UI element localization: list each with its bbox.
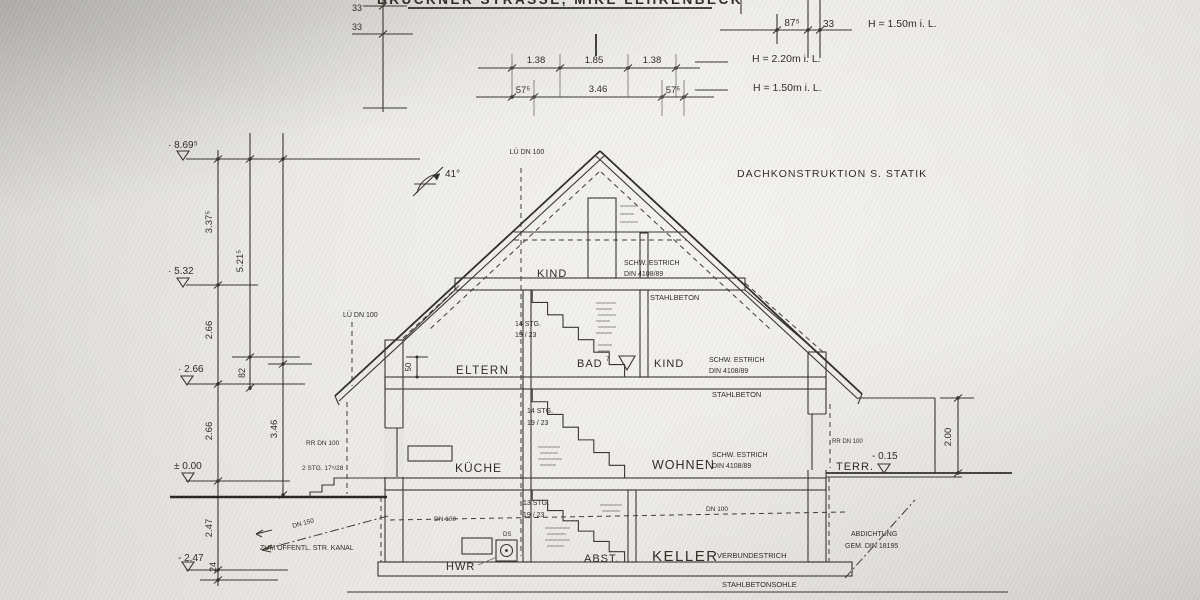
level-266: · 2.66	[178, 364, 204, 375]
dim-185: 1.85	[585, 55, 604, 66]
og-floor-slab	[385, 377, 826, 389]
floor-slabs	[378, 278, 852, 576]
vent-ridge-label: LÜ DN 100	[510, 148, 545, 156]
ext-stairs-label: 2 STG. 17⁵/28	[302, 465, 344, 472]
og-screed-1: SCHW. ESTRICH	[709, 357, 765, 364]
section-drawing: BRÜCKNER STRASSE, MIKE LEHRENBECK 33 33 …	[0, 0, 1200, 600]
roof-pitch-symbol	[413, 167, 443, 196]
drain-line	[390, 512, 845, 520]
bath-level-marker	[619, 356, 635, 370]
og-partition-wall	[640, 290, 648, 377]
height-note-right: H = 1.50m i. L.	[868, 18, 937, 30]
level-m247: - 2.47	[178, 553, 204, 564]
top-right-dims: 87⁵ 33 H = 1.50m i. L. H = 2.20m i. L. H…	[695, 0, 937, 94]
dim-346-top: 3.46	[589, 84, 608, 95]
vdim-5215: 5.21⁵	[235, 250, 246, 272]
sewer-line: DN 150 ZUM ÖFFENTL. STR. KANAL	[256, 516, 388, 552]
level-000: ± 0.00	[174, 461, 202, 472]
room-keller: KELLER	[652, 548, 719, 565]
vdim-50: 50	[404, 362, 413, 371]
vdim-3375: 3.37⁵	[204, 211, 215, 233]
eg-floor-slab	[385, 478, 826, 490]
dim-575-a: 57⁵	[516, 85, 531, 96]
dg-screed-1: SCHW. ESTRICH	[624, 260, 680, 267]
dim-575-b: 57⁵	[666, 85, 681, 96]
vdim-82: 82	[237, 368, 247, 378]
washer-symbols	[462, 538, 517, 561]
top-left-dims: 33 33	[352, 0, 596, 112]
height-note-mid: H = 2.20m i. L.	[752, 53, 821, 65]
dim-33-right: 33	[823, 19, 835, 30]
eg-screed-2: DIN 4108/89	[712, 463, 751, 470]
dg-slab-label: STAHLBETON	[650, 293, 699, 302]
dg-screed-2: DIN 4108/89	[624, 271, 663, 278]
rr-right-label: RR DN 100	[832, 439, 863, 445]
terrace-level-marker	[878, 464, 890, 473]
dim-138-a: 1.38	[527, 55, 546, 66]
dim-33-a: 33	[352, 3, 362, 13]
room-bad: BAD	[577, 358, 603, 370]
room-kueche: KÜCHE	[455, 461, 502, 475]
kg-stairs-2: 19 / 23	[523, 512, 545, 519]
level-8695: · 8.69⁵	[168, 140, 198, 151]
dg-floor-slab	[455, 278, 745, 290]
vdim-266-lower: 2.66	[204, 422, 215, 441]
entrance-door	[384, 428, 404, 477]
vdim-247: 2.47	[204, 519, 215, 538]
chimney	[588, 198, 616, 278]
eg-screed-1: SCHW. ESTRICH	[712, 452, 768, 459]
roof-structure-note: DACHKONSTRUKTION S. STATIK	[737, 168, 927, 180]
dn100-right: DN 100	[706, 506, 728, 513]
roof: DACHKONSTRUKTION S. STATIK 41° LÜ DN 100…	[335, 148, 927, 556]
vdim-346: 3.46	[269, 420, 280, 439]
room-kind-dg: KIND	[537, 268, 567, 280]
level-532: · 5.32	[168, 266, 194, 277]
room-abst: ABST.	[584, 553, 620, 565]
kitchen-counter	[408, 446, 452, 461]
title-text: BRÜCKNER STRASSE, MIKE LEHRENBECK	[377, 0, 743, 7]
seal-label-2: GEM. DIN 18195	[845, 543, 898, 550]
waterproofing-note: ABDICHTUNG GEM. DIN 18195	[845, 500, 915, 578]
basement: DN 100 DN 100 HWR DS 13 STG. 19 / 23 ABS…	[381, 477, 915, 589]
dim-33-b: 33	[352, 22, 362, 32]
terrace-door	[807, 414, 828, 470]
dn150-label: DN 150	[292, 517, 315, 530]
sole-label: STAHLBETONSOHLE	[722, 580, 797, 589]
room-hwr: HWR	[446, 561, 475, 573]
vdim-24: 24	[208, 562, 218, 572]
right-exterior: RR DN 100 TERR. - 0.15 2.00	[826, 395, 1012, 478]
rr-left-label: RR DN 100	[306, 440, 340, 447]
dim-138-b: 1.38	[643, 55, 662, 66]
og-labels: ELTERN BAD 7 KIND SCHW. ESTRICH DIN 4108…	[404, 356, 765, 428]
sheet-title: BRÜCKNER STRASSE, MIKE LEHRENBECK	[377, 0, 743, 8]
og-stairs-1: 14 STG.	[527, 408, 553, 415]
seal-label-1: ABDICHTUNG	[851, 531, 897, 538]
dim-875: 87⁵	[784, 18, 799, 29]
knee-wall-dim: 50	[404, 356, 428, 379]
level-markers	[177, 151, 194, 571]
vdim-200: 2.00	[943, 428, 954, 447]
terrace-height-dim: 2.00	[940, 395, 974, 477]
dg-stairs-2: 19 / 23	[515, 332, 537, 339]
dn100-left: DN 100	[434, 516, 456, 523]
og-screed-2: DIN 4108/89	[709, 368, 748, 375]
kg-stairs-1: 13 STG.	[523, 500, 549, 507]
vent-left-label: LÜ DN 100	[343, 311, 378, 319]
eg-labels: KÜCHE WOHNEN SCHW. ESTRICH DIN 4108/89	[408, 446, 768, 475]
dg-stairs-1: 14 STG.	[515, 321, 541, 328]
screed-label: VERBUNDESTRICH	[717, 551, 787, 560]
room-wohnen: WOHNEN	[652, 458, 715, 472]
height-note-low: H = 1.50m i. L.	[753, 82, 822, 94]
ds-label: DS	[503, 532, 511, 538]
level-m015: - 0.15	[872, 451, 898, 462]
room-eltern: ELTERN	[456, 365, 510, 377]
roof-angle: 41°	[445, 169, 460, 180]
vdim-266-upper: 2.66	[204, 321, 215, 340]
room-kind-og: KIND	[654, 358, 684, 370]
kg-partition-wall	[628, 490, 636, 562]
og-stairs-2: 19 / 23	[527, 420, 549, 427]
terrace-label: TERR.	[836, 461, 874, 473]
sewer-note: ZUM ÖFFENTL. STR. KANAL	[260, 544, 354, 552]
og-slab-label: STAHLBETON	[712, 390, 761, 399]
section-drawing-photo: BRÜCKNER STRASSE, MIKE LEHRENBECK 33 33 …	[0, 0, 1200, 600]
